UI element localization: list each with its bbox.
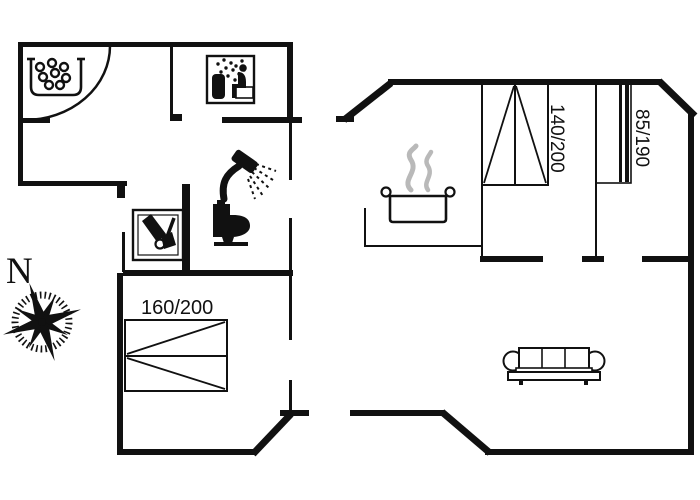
sauna-heater [212, 74, 225, 99]
shower-icon [223, 149, 276, 199]
wall-segment [287, 42, 293, 123]
steam-swirl [408, 146, 416, 190]
sofa-foot [584, 380, 588, 385]
wall-segment [123, 270, 293, 276]
bed-fold-line [127, 358, 225, 389]
bed-fold-line [516, 86, 546, 183]
toilet-icon [213, 200, 250, 246]
wall-segment [170, 114, 182, 121]
toilet-bowl [213, 215, 250, 237]
wall-segment [485, 449, 692, 455]
wall-segment [289, 380, 292, 414]
wall-segment [170, 44, 173, 120]
pot-body [390, 196, 446, 222]
steam-swirl [426, 152, 431, 190]
wall-segment [280, 410, 309, 416]
sofa-icon [504, 348, 605, 385]
wall-segment [659, 81, 695, 116]
wall-segment [253, 414, 291, 454]
sauna-icon [207, 56, 254, 103]
wall-segment [442, 412, 490, 453]
wall-segment [18, 42, 23, 186]
garden-tools-icon [133, 210, 183, 260]
shower-arm [223, 166, 239, 199]
wall-segment [336, 116, 354, 122]
wall-segment [480, 256, 543, 262]
wall-segment [289, 123, 292, 180]
wall-segment [344, 83, 391, 120]
bed-label-160-200: 160/200 [141, 297, 213, 319]
toilet-base [214, 242, 248, 246]
floor-plan: N 160/200 140/200 85/190 [0, 0, 700, 500]
wall-segment [117, 449, 257, 455]
single-bed-85 [596, 84, 631, 183]
wall-segment [18, 181, 127, 186]
bubbles [36, 59, 70, 89]
bed-edge [619, 85, 622, 182]
wall-segment [18, 42, 293, 47]
wall-segment [117, 273, 123, 455]
whirlpool-icon [27, 59, 85, 95]
north-label: N [6, 251, 33, 292]
wall-segment [642, 256, 692, 262]
bed-label-140-200: 140/200 [546, 104, 567, 173]
floor-plan-canvas: N 160/200 140/200 85/190 [0, 0, 700, 500]
bed-fold-line [484, 86, 514, 183]
wall-segment [117, 186, 125, 198]
sofa-foot [519, 380, 523, 385]
bed-label-85-190: 85/190 [631, 109, 652, 167]
wall-segment [582, 256, 604, 262]
bed-edge [625, 85, 629, 182]
sofa-cushions [519, 348, 589, 369]
toilet-tank [213, 204, 230, 216]
double-bed-140 [482, 84, 548, 185]
bed-fold-line [127, 322, 225, 354]
double-bed-160 [125, 320, 227, 391]
sofa-base [508, 372, 600, 380]
wall-segment [122, 232, 125, 272]
wall-segment [350, 410, 444, 416]
wall-segment [688, 113, 694, 455]
wall-segment [289, 218, 292, 340]
door-arc [25, 46, 110, 120]
cooking-pot-icon [382, 146, 455, 222]
